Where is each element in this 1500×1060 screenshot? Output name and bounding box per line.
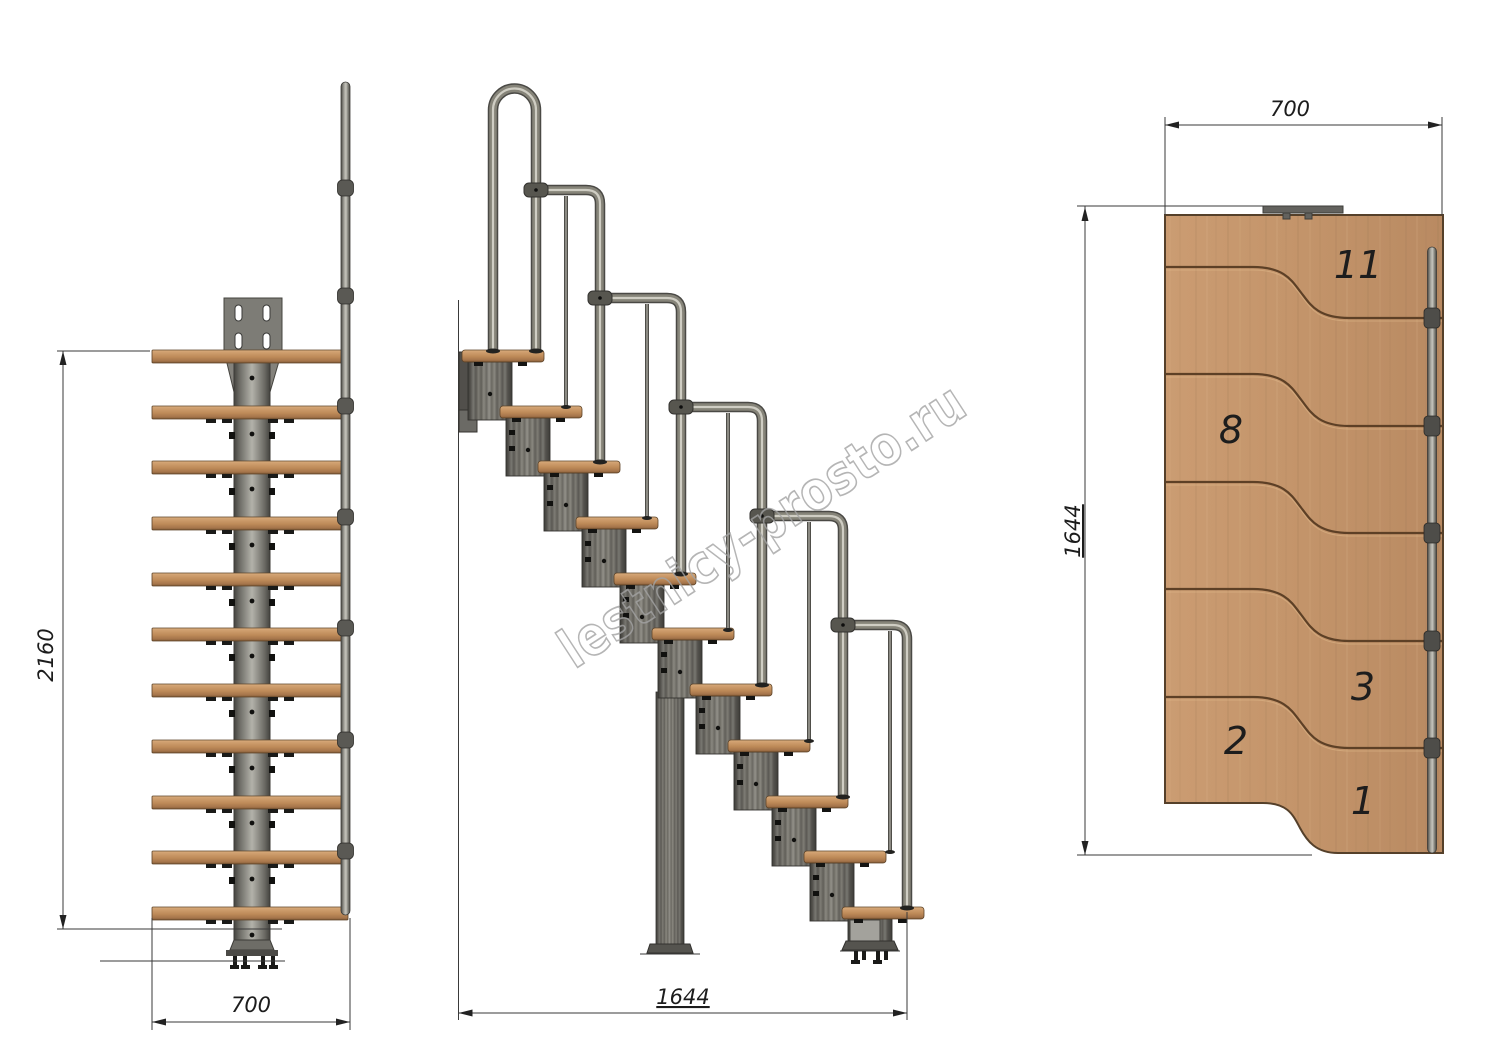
front-column-base [230, 940, 274, 950]
plan-step-label-2: 2 [1224, 719, 1248, 763]
side-support-foot [647, 944, 693, 953]
front-mount-plate [224, 298, 282, 351]
plan-handrail-pole [1428, 247, 1437, 853]
plate-slot [235, 333, 242, 349]
dim-plan-length-label: 1644 [1061, 504, 1085, 557]
technical-drawing-canvas: 2160 700 [0, 0, 1500, 1060]
plan-mount-plate [1263, 206, 1343, 213]
front-base-plate [226, 950, 278, 956]
dim-side-length-label: 1644 [656, 985, 709, 1009]
dim-plan-width-label: 700 [1270, 97, 1310, 121]
front-view [100, 82, 354, 969]
side-base-bolts [851, 951, 888, 964]
plate-slot [263, 333, 270, 349]
plate-slot [263, 305, 270, 321]
plan-mount-plate-tab [1305, 213, 1312, 219]
front-base-bolts [230, 956, 278, 969]
dim-front-width-label: 700 [231, 993, 271, 1017]
plan-step-label-8: 8 [1219, 408, 1243, 452]
technical-drawing-page: 2160 700 [0, 0, 1500, 1060]
plan-panel-grain [1160, 210, 1450, 860]
side-end-base [842, 941, 898, 950]
front-handrail-pole [341, 82, 350, 915]
dim-front-height-label: 2160 [34, 628, 58, 681]
side-support-leg [656, 692, 684, 953]
plate-slot [235, 305, 242, 321]
plan-step-label-11: 11 [1334, 243, 1382, 287]
plan-step-label-3: 3 [1351, 665, 1375, 709]
plan-view: 11 8 3 2 1 [1160, 206, 1450, 860]
plan-step-label-1: 1 [1351, 779, 1375, 823]
plan-mount-plate-tab [1283, 213, 1290, 219]
